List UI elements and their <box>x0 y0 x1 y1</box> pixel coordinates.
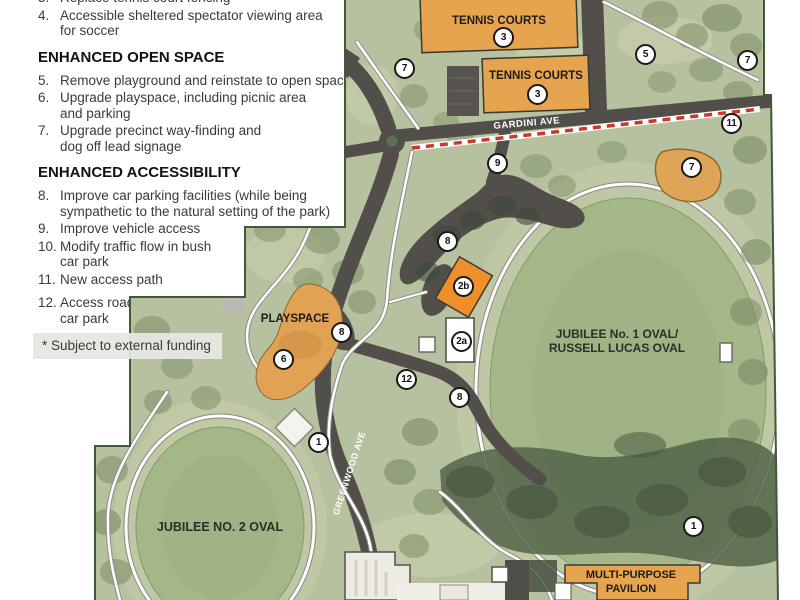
marker-3a: 3 <box>493 27 514 48</box>
marker-2a: 2a <box>451 331 472 352</box>
marker-8b: 8 <box>449 387 470 408</box>
marker-8a: 8 <box>437 231 458 252</box>
park-map: TENNIS COURTS TENNIS COURTS GARDINI AVE … <box>0 0 800 600</box>
marker-7b: 7 <box>737 50 758 71</box>
marker-1b: 1 <box>683 516 704 537</box>
small-white-building <box>492 567 508 582</box>
playspace-label: PLAYSPACE <box>261 313 330 325</box>
oval-side-structure <box>720 343 732 362</box>
small-white-building-2 <box>555 583 571 600</box>
marker-2b: 2b <box>453 276 474 297</box>
external-funding-footnote: * Subject to external funding <box>33 333 222 359</box>
small-gray-shed <box>222 298 244 314</box>
pavilion-label-line1: MULTI-PURPOSE <box>586 569 676 581</box>
dark-yard <box>529 560 557 592</box>
oval1-label-line1: JUBILEE No. 1 OVAL/ <box>556 327 679 341</box>
marker-6: 6 <box>273 349 294 370</box>
marker-1a: 1 <box>308 432 329 453</box>
marker-7a: 7 <box>394 58 415 79</box>
marker-12: 12 <box>396 369 417 390</box>
marker-11: 11 <box>721 113 742 134</box>
marker-3b: 3 <box>527 84 548 105</box>
tennis-courts-1-label: TENNIS COURTS <box>452 15 546 27</box>
marker-5: 5 <box>635 44 656 65</box>
small-building <box>440 585 468 600</box>
park-masterplan-page: TENNIS COURTS TENNIS COURTS GARDINI AVE … <box>0 0 800 600</box>
oval1-label-line2: RUSSELL LUCAS OVAL <box>549 341 685 355</box>
roundabout-island <box>387 136 398 147</box>
tennis-courts-2-label: TENNIS COURTS <box>489 70 583 82</box>
pavilion-label-line2: PAVILION <box>606 583 656 595</box>
marker-7c: 7 <box>681 157 702 178</box>
marker-9: 9 <box>487 153 508 174</box>
small-square-structure <box>419 337 435 352</box>
marker-8c: 8 <box>331 322 352 343</box>
oval2-label: JUBILEE NO. 2 OVAL <box>157 520 284 534</box>
